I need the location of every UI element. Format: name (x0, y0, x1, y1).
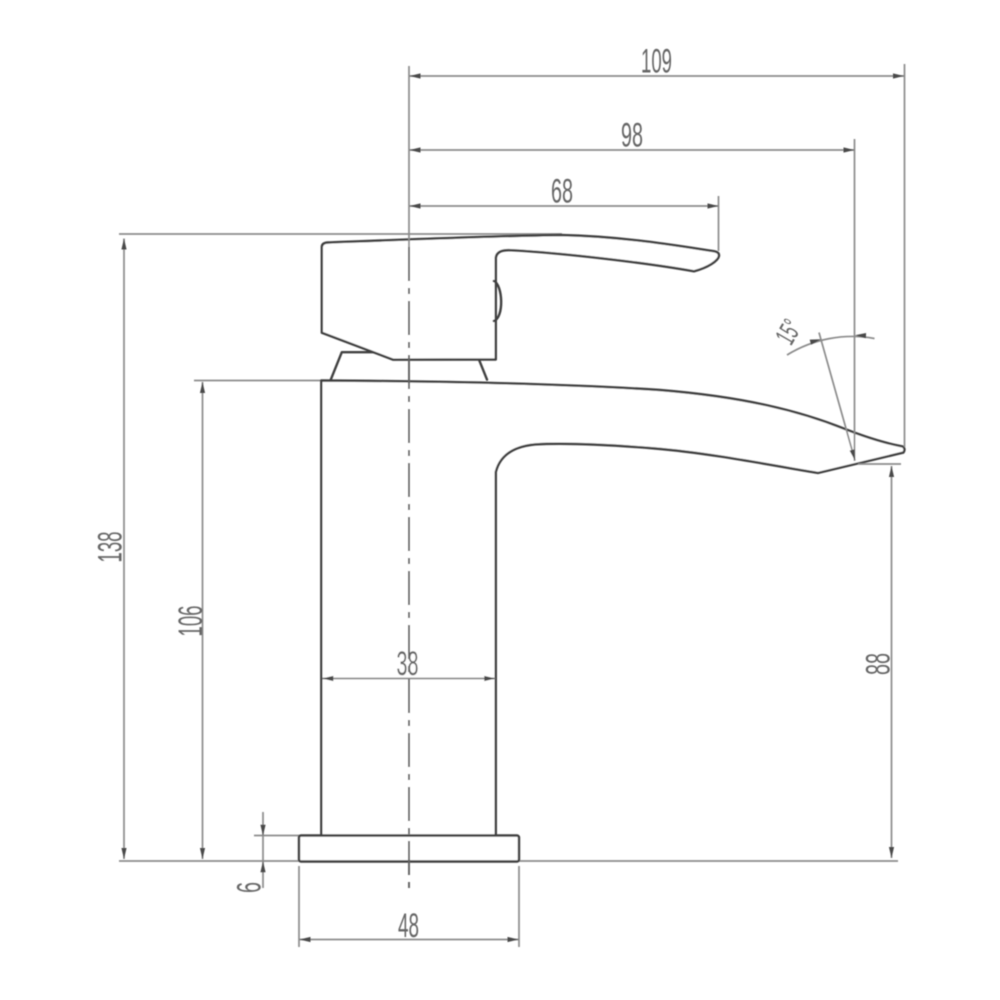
svg-text:48: 48 (398, 907, 419, 945)
svg-text:106: 106 (172, 606, 210, 637)
svg-text:109: 109 (641, 43, 672, 81)
svg-text:138: 138 (92, 532, 130, 563)
svg-text:6: 6 (231, 882, 269, 893)
svg-text:38: 38 (397, 645, 419, 683)
svg-text:15°: 15° (769, 314, 807, 349)
svg-text:98: 98 (621, 117, 643, 155)
svg-text:68: 68 (551, 173, 573, 211)
svg-text:88: 88 (860, 653, 898, 675)
